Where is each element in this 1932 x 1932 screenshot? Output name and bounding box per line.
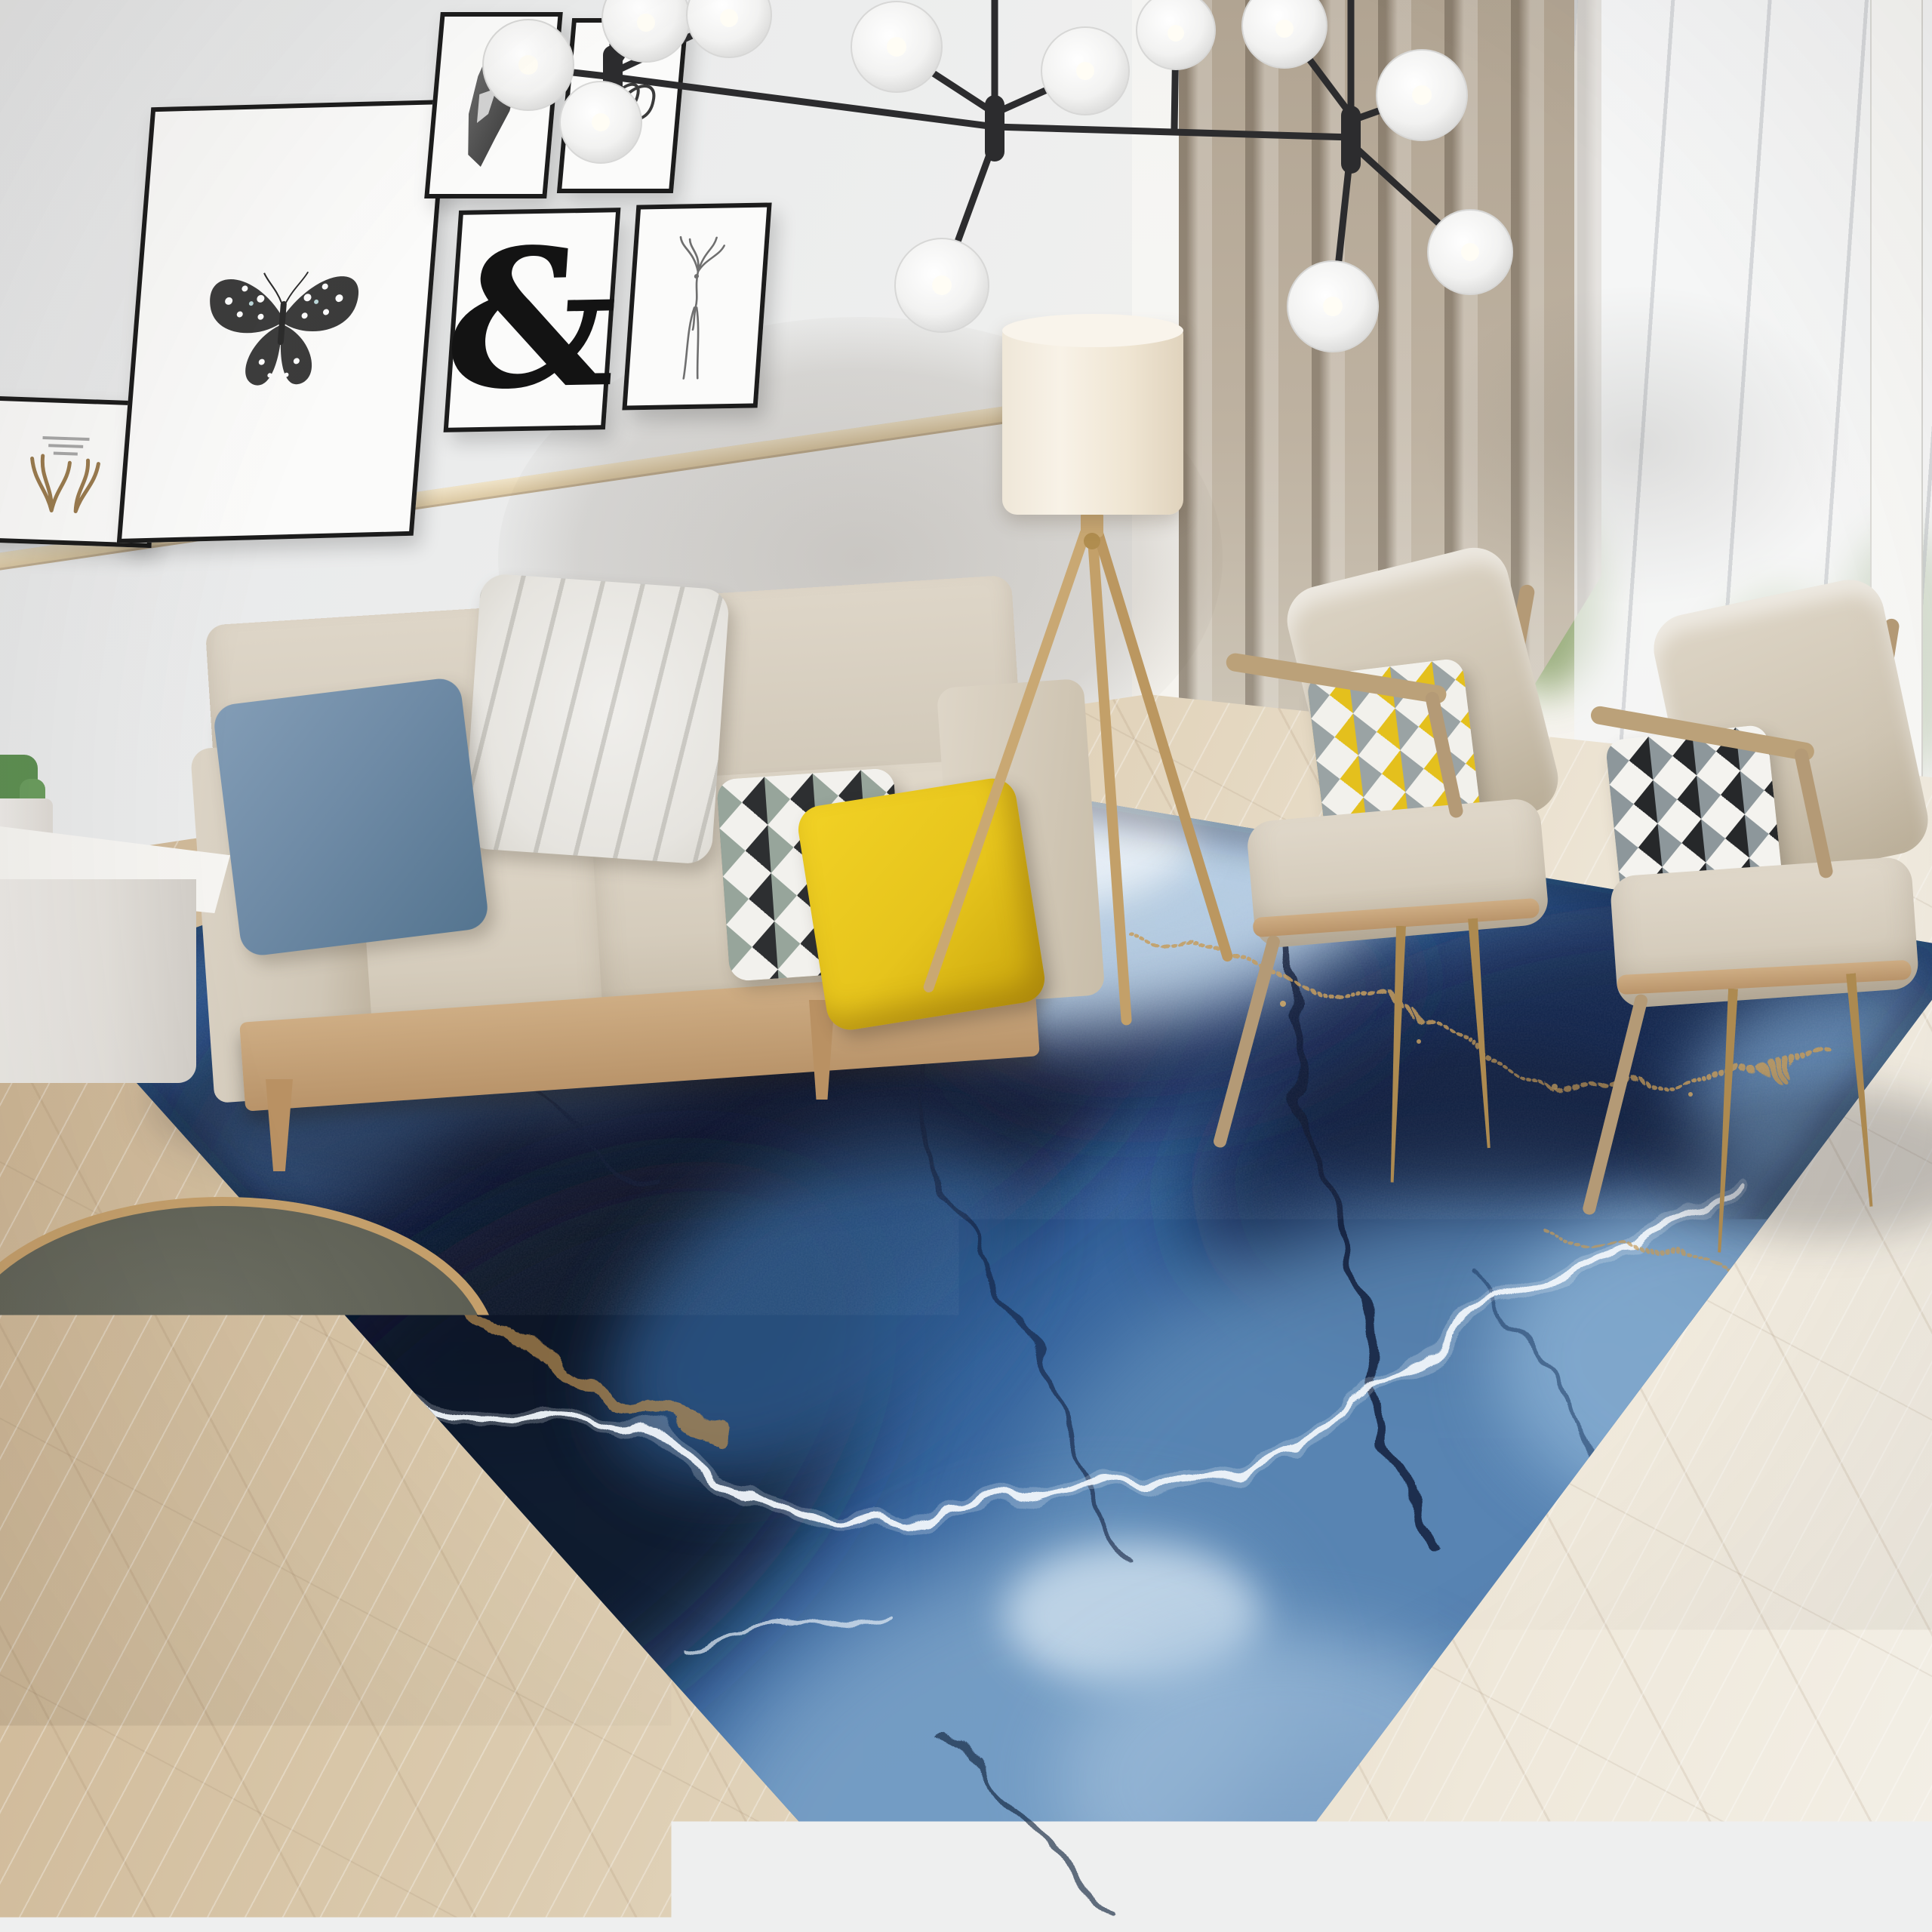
whiskey-glass <box>580 1606 697 1731</box>
side-table-body <box>0 879 196 1083</box>
chair-front-leg <box>1846 973 1876 1207</box>
chair-front-leg <box>1387 926 1406 1183</box>
lamp-shade <box>1002 323 1183 515</box>
pillow-white-abstract <box>463 573 731 865</box>
chair-front-leg <box>1715 989 1738 1253</box>
lamp-joint <box>1084 533 1100 549</box>
living-room-photo: & <box>0 0 1932 1932</box>
pillow-blue <box>212 676 490 958</box>
chair-front-leg <box>1468 918 1494 1149</box>
armchair-left <box>1219 555 1581 1249</box>
chair-rear-leg <box>1582 993 1649 1216</box>
pillow-yellow <box>795 775 1048 1033</box>
lamp-shade-top <box>1002 314 1183 347</box>
armchair-right <box>1591 581 1932 1306</box>
chair-rear-leg <box>1212 934 1281 1149</box>
